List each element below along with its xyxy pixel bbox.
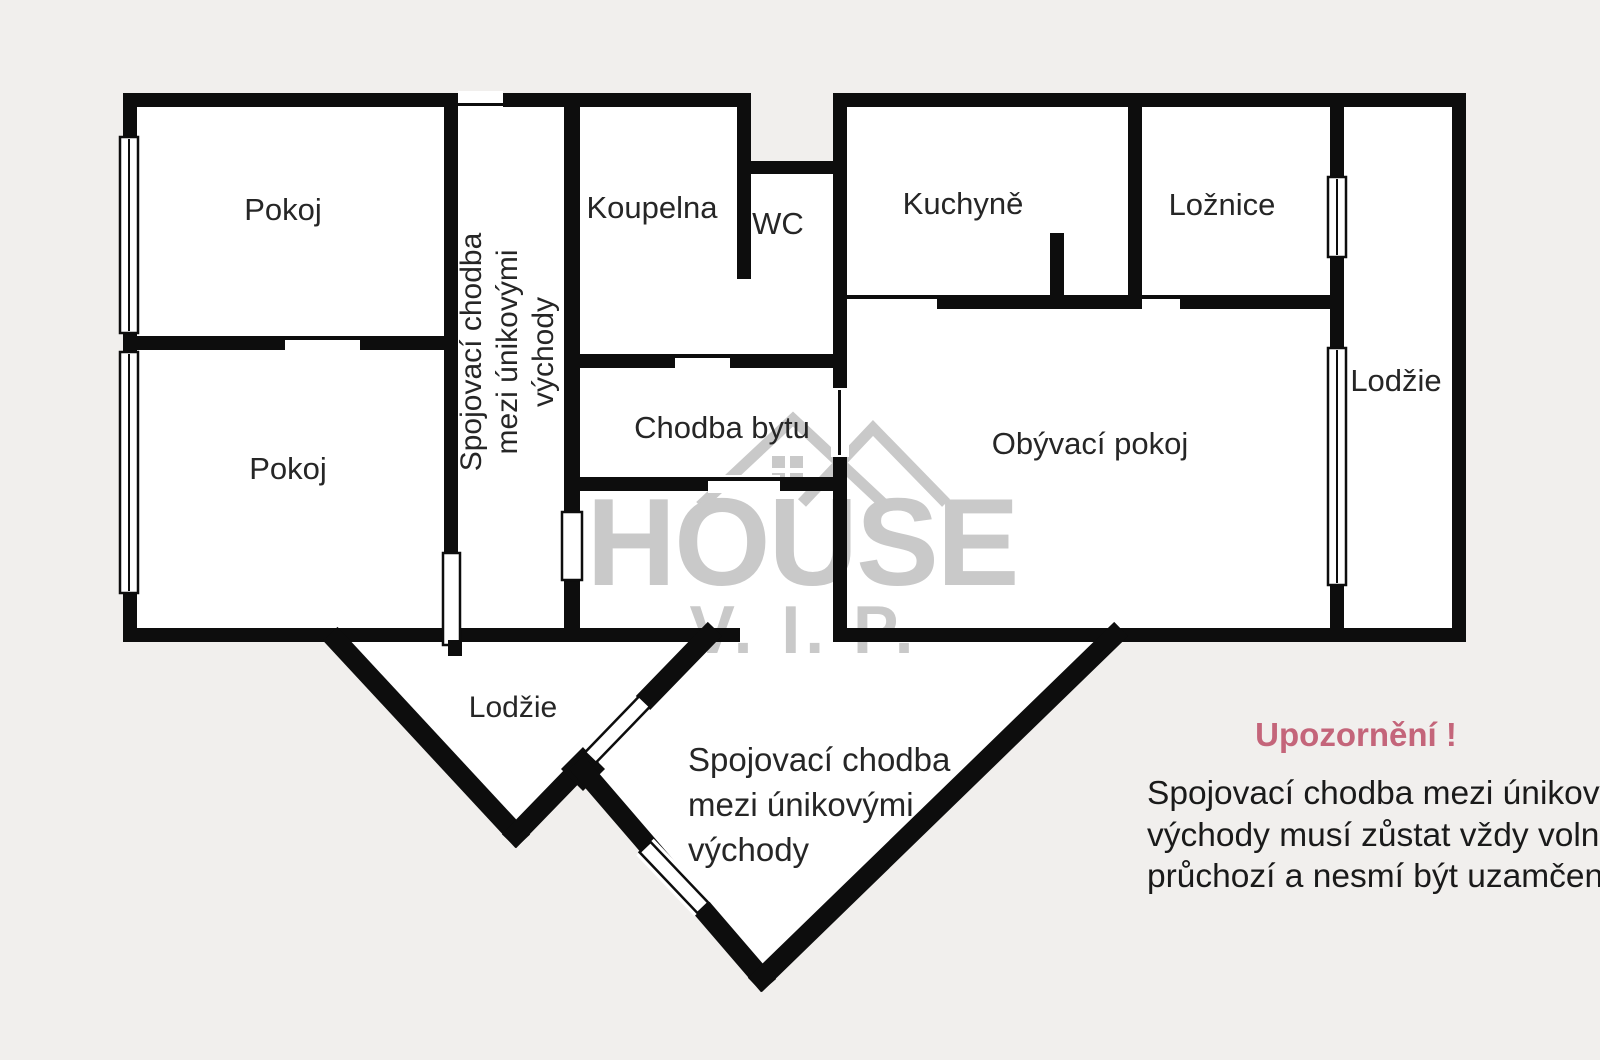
warning-line-3: průchozí a nesmí být uzamčena — [1147, 856, 1600, 898]
floorplan-page: HOUSE V. I. P. — [0, 0, 1600, 1060]
room-label-chodba-bytu: Chodba bytu — [634, 410, 810, 446]
corridor-vertical-line-1: Spojovací chodba — [454, 233, 490, 472]
corridor-diamond-line-3: východy — [688, 827, 950, 872]
room-label-obyvaci-pokoj: Obývací pokoj — [992, 426, 1188, 462]
door-corridor-top — [458, 91, 503, 107]
door-obyvaci-pokoj — [831, 388, 849, 457]
door-koupelna — [675, 352, 730, 370]
room-label-loznice: Ložnice — [1169, 187, 1276, 223]
door-chodba-bytu — [708, 475, 780, 493]
corridor-diamond-line-1: Spojovací chodba — [688, 737, 950, 782]
window-obyvaci — [1328, 348, 1346, 585]
room-label-corridor-diamond: Spojovací chodba mezi únikovými východy — [688, 737, 950, 872]
room-label-wc: WC — [752, 206, 804, 242]
warning-text: Spojovací chodba mezi únikovými východy … — [1147, 773, 1600, 898]
window-pokoj-bottom — [120, 352, 138, 593]
window-loznice — [1328, 177, 1346, 257]
room-label-corridor-vertical: Spojovací chodba mezi únikovými východy — [454, 233, 562, 472]
door-loznice — [1142, 293, 1180, 311]
corridor-vertical-line-2: mezi únikovými — [490, 233, 526, 472]
door-pokoj-divider — [285, 334, 360, 352]
warning-line-1: Spojovací chodba mezi únikovými — [1147, 773, 1600, 815]
room-label-pokoj-bottom: Pokoj — [249, 451, 327, 487]
room-label-kuchyne: Kuchyně — [903, 186, 1024, 222]
door-kuchyne — [847, 293, 937, 311]
warning-title: Upozornění ! — [1255, 716, 1457, 754]
room-label-koupelna: Koupelna — [586, 190, 717, 226]
room-label-pokoj-top: Pokoj — [244, 192, 322, 228]
door-corridor-hall — [562, 512, 582, 580]
corridor-vertical-line-3: východy — [526, 233, 562, 472]
door-corridor-lodzie — [443, 553, 462, 656]
floorplan-svg: HOUSE V. I. P. — [0, 0, 1600, 1060]
corridor-diamond-line-2: mezi únikovými — [688, 782, 950, 827]
room-label-lodzie-right: Lodžie — [1350, 363, 1441, 399]
room-label-lodzie-bottom: Lodžie — [469, 691, 557, 725]
warning-line-2: východy musí zůstat vždy volně — [1147, 815, 1600, 857]
window-pokoj-top — [120, 137, 138, 333]
